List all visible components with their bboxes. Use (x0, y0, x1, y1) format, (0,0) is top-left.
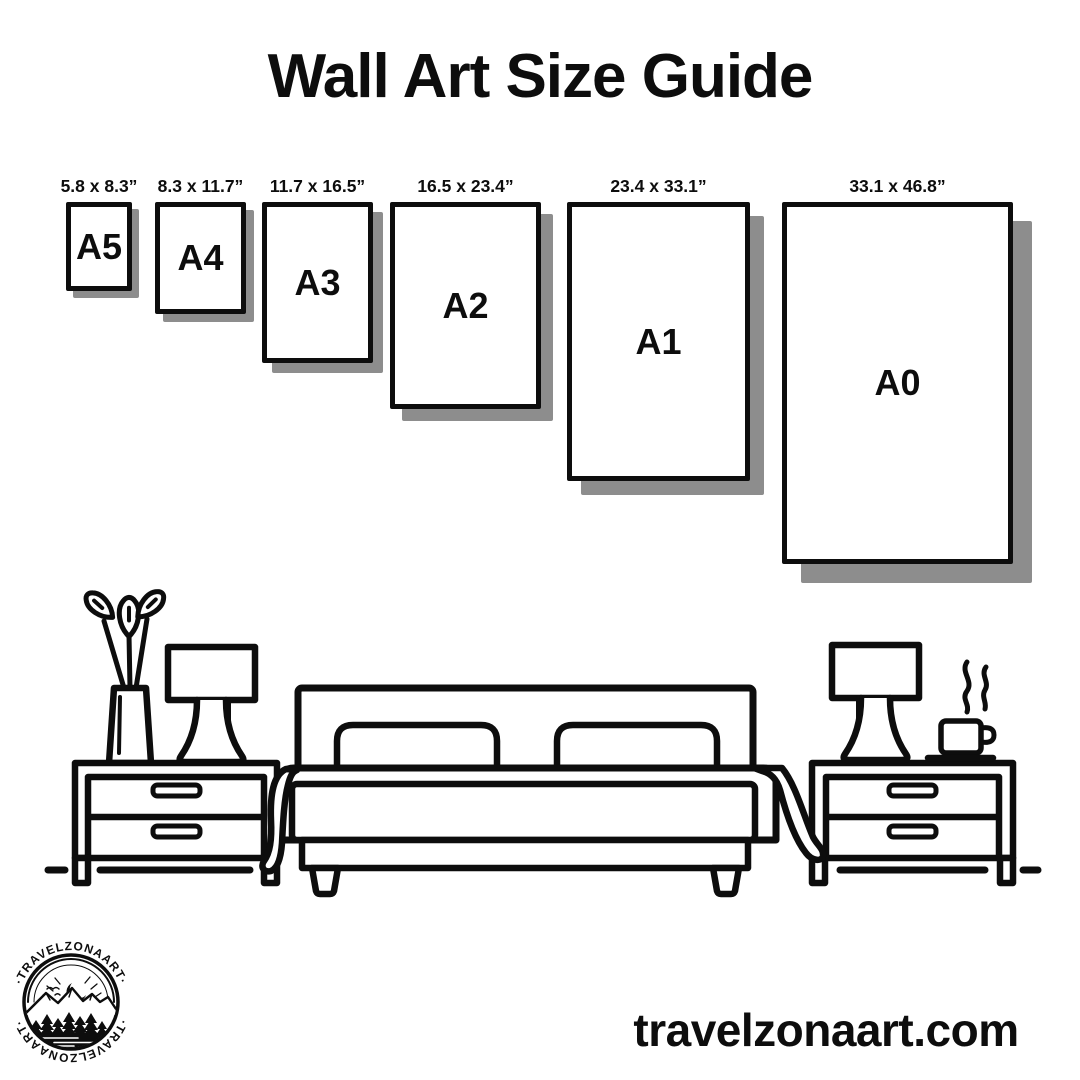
steam-icon (965, 662, 987, 712)
bed-icon (262, 688, 823, 894)
bed-leg (713, 868, 739, 894)
bed-base (302, 840, 748, 868)
frame-a5: A5 (66, 202, 132, 291)
frame-a3-size-label: 11.7 x 16.5” (262, 176, 373, 196)
frame-a1: A1 (567, 202, 750, 481)
frame-a5-size-label: 5.8 x 8.3” (66, 176, 132, 196)
drawer-handle (153, 785, 200, 796)
brand-logo: ·TRAVELZONAART· ·TRAVELZONAART· (6, 937, 136, 1067)
frame-a4-size-label: 8.3 x 11.7” (155, 176, 246, 196)
nightstand-right (812, 763, 1013, 883)
frame-a0: A0 (782, 202, 1013, 564)
drawer-handle (153, 826, 200, 837)
frame-a4: A4 (155, 202, 246, 314)
frame-a5-code: A5 (76, 226, 122, 268)
frame-a2-size-label: 16.5 x 23.4” (390, 176, 541, 196)
frame-a3: A3 (262, 202, 373, 363)
table-lamp-right-icon (832, 645, 919, 760)
frame-a1-size-label: 23.4 x 33.1” (567, 176, 750, 196)
website-url: travelzonaart.com (633, 1003, 1018, 1057)
page-title: Wall Art Size Guide (0, 46, 1080, 108)
table-lamp-left-icon (168, 647, 255, 762)
mattress-panel (292, 784, 755, 840)
frame-a3-code: A3 (294, 262, 340, 304)
vase-plant-icon (82, 587, 168, 763)
drawer-handle (889, 785, 936, 796)
frame-a2: A2 (390, 202, 541, 409)
drawer-handle (889, 826, 936, 837)
bed-leg (312, 868, 338, 894)
bedroom-scene-illustration (40, 585, 1045, 900)
frame-a0-code: A0 (874, 362, 920, 404)
frame-a1-code: A1 (635, 321, 681, 363)
frame-a0-size-label: 33.1 x 46.8” (782, 176, 1013, 196)
frame-a2-code: A2 (442, 285, 488, 327)
frame-a4-code: A4 (177, 237, 223, 279)
coffee-cup-icon (928, 662, 994, 758)
size-guide-infographic: Wall Art Size Guide 5.8 x 8.3” 8.3 x 11.… (0, 0, 1080, 1080)
nightstand-left (75, 763, 277, 883)
